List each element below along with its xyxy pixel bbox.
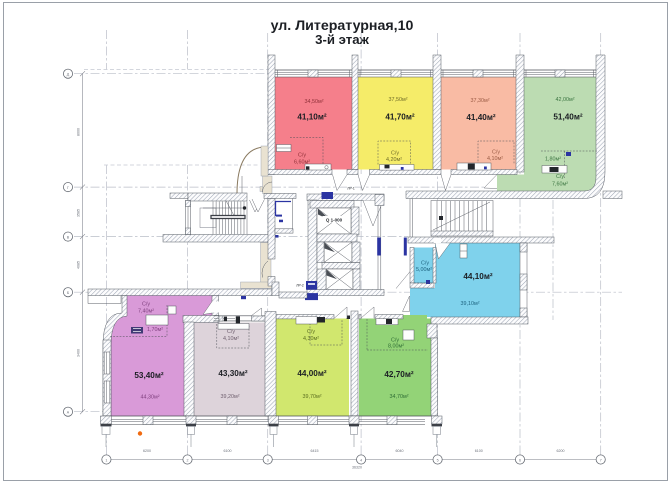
svg-text:6: 6	[519, 458, 521, 462]
svg-text:С/у: С/у	[298, 153, 306, 159]
svg-text:С/у: С/у	[556, 174, 564, 180]
svg-text:41,70м²: 41,70м²	[385, 113, 415, 122]
svg-text:С/у: С/у	[492, 150, 500, 156]
svg-text:1,80м²: 1,80м²	[545, 157, 561, 163]
svg-text:8,00м²: 8,00м²	[388, 344, 404, 350]
svg-text:6100: 6100	[224, 449, 232, 453]
svg-text:ЛР-1: ЛР-1	[347, 187, 355, 191]
svg-text:С/у: С/у	[421, 261, 429, 267]
svg-text:1: 1	[105, 458, 107, 462]
svg-text:3: 3	[267, 458, 269, 462]
svg-text:36320: 36320	[352, 466, 362, 470]
svg-text:С/у: С/у	[307, 329, 315, 335]
svg-text:34,50м²: 34,50м²	[305, 99, 324, 105]
svg-text:41,10м²: 41,10м²	[297, 113, 327, 122]
svg-text:37,50м²: 37,50м²	[389, 97, 408, 103]
svg-text:39,20м²: 39,20м²	[221, 394, 240, 400]
svg-text:39,70м²: 39,70м²	[303, 394, 322, 400]
svg-text:44,10м²: 44,10м²	[463, 272, 493, 281]
svg-text:6040: 6040	[396, 449, 404, 453]
svg-text:42,70м²: 42,70м²	[384, 370, 414, 379]
svg-text:41,40м²: 41,40м²	[466, 113, 496, 122]
svg-text:37,30м²: 37,30м²	[471, 98, 490, 104]
svg-text:6200: 6200	[557, 449, 565, 453]
svg-text:7,40м²: 7,40м²	[138, 309, 154, 315]
svg-text:4085: 4085	[77, 261, 81, 269]
svg-text:4,20м²: 4,20м²	[386, 157, 402, 163]
svg-text:4,10м²: 4,10м²	[223, 336, 239, 342]
svg-text:2: 2	[187, 458, 189, 462]
svg-text:8000: 8000	[77, 128, 81, 136]
svg-text:4: 4	[360, 458, 362, 462]
svg-text:6200: 6200	[143, 449, 151, 453]
svg-text:1,70м²: 1,70м²	[147, 327, 163, 333]
svg-text:6100: 6100	[475, 449, 483, 453]
svg-text:7: 7	[600, 458, 602, 462]
svg-text:4,10м²: 4,10м²	[487, 156, 503, 162]
svg-text:43,30м²: 43,30м²	[218, 369, 248, 378]
svg-text:7,60м²: 7,60м²	[552, 182, 568, 188]
svg-text:ЛР-2: ЛР-2	[296, 284, 304, 288]
svg-text:42,00м²: 42,00м²	[556, 97, 575, 103]
svg-text:44,00м²: 44,00м²	[297, 369, 327, 378]
svg-text:Q 1-000: Q 1-000	[326, 217, 343, 222]
svg-text:6415: 6415	[311, 449, 319, 453]
svg-text:4,30м²: 4,30м²	[303, 336, 319, 342]
svg-text:Г: Г	[67, 186, 69, 190]
svg-text:5: 5	[437, 458, 439, 462]
svg-text:51,40м²: 51,40м²	[553, 113, 583, 122]
svg-text:3400: 3400	[77, 349, 81, 357]
svg-text:44,30м²: 44,30м²	[141, 395, 160, 401]
svg-text:3585: 3585	[77, 209, 81, 217]
svg-text:39,10м²: 39,10м²	[461, 301, 480, 307]
svg-text:34,70м²: 34,70м²	[390, 394, 409, 400]
svg-text:С/у: С/у	[227, 329, 235, 335]
svg-text:С/у: С/у	[142, 302, 150, 308]
svg-text:53,40м²: 53,40м²	[134, 371, 164, 380]
svg-text:С/у: С/у	[391, 151, 399, 157]
svg-text:5,00м²: 5,00м²	[416, 267, 432, 273]
